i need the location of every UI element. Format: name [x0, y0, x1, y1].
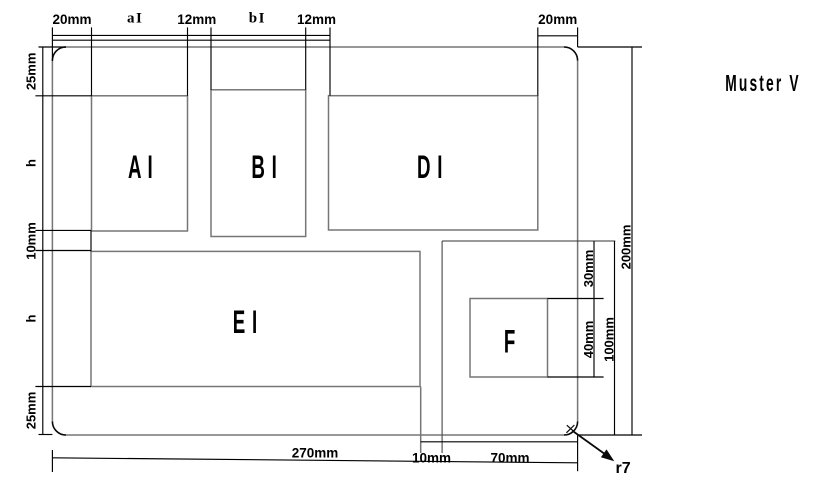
svg-text:20mm: 20mm [52, 12, 91, 27]
svg-text:h: h [24, 159, 39, 167]
svg-text:70mm: 70mm [490, 451, 529, 466]
svg-text:D I: D I [417, 149, 443, 186]
svg-text:10mm: 10mm [24, 222, 39, 260]
svg-text:200mm: 200mm [619, 225, 634, 270]
svg-text:bI: bI [249, 11, 266, 27]
svg-text:Muster V: Muster V [725, 72, 801, 97]
svg-text:E I: E I [233, 304, 258, 341]
svg-text:270mm: 270mm [292, 446, 339, 461]
svg-text:100mm: 100mm [602, 317, 617, 362]
svg-text:B I: B I [251, 149, 277, 186]
svg-text:10mm: 10mm [412, 451, 451, 466]
svg-text:aI: aI [127, 11, 143, 27]
svg-text:25mm: 25mm [24, 392, 39, 430]
svg-text:r7: r7 [616, 460, 631, 477]
svg-text:40mm: 40mm [581, 321, 596, 359]
svg-text:25mm: 25mm [24, 53, 39, 91]
svg-text:20mm: 20mm [538, 12, 577, 27]
svg-text:F: F [504, 323, 515, 360]
svg-text:12mm: 12mm [177, 12, 216, 27]
svg-text:h: h [24, 314, 39, 322]
svg-text:30mm: 30mm [581, 250, 596, 288]
svg-text:12mm: 12mm [297, 12, 336, 27]
svg-text:A I: A I [128, 149, 154, 186]
